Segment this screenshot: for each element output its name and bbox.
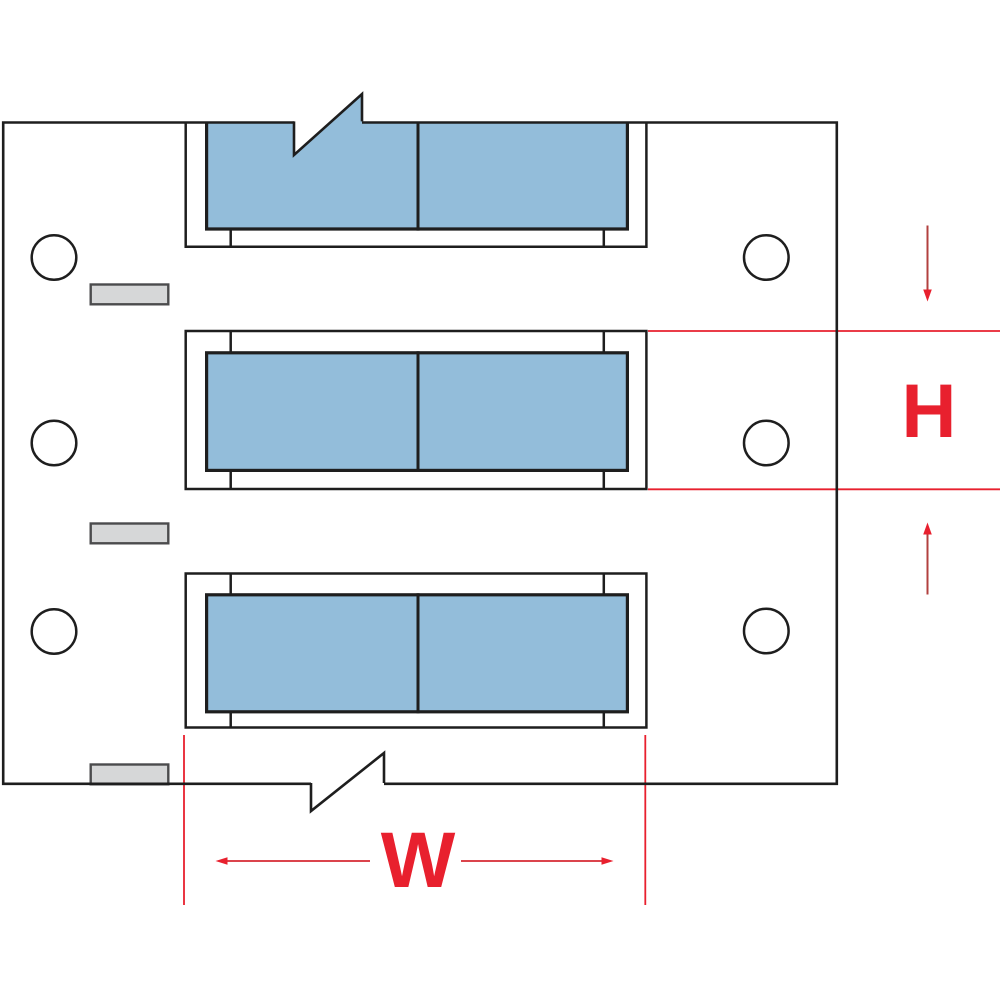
- svg-text:H: H: [902, 369, 957, 454]
- svg-text:W: W: [381, 815, 456, 904]
